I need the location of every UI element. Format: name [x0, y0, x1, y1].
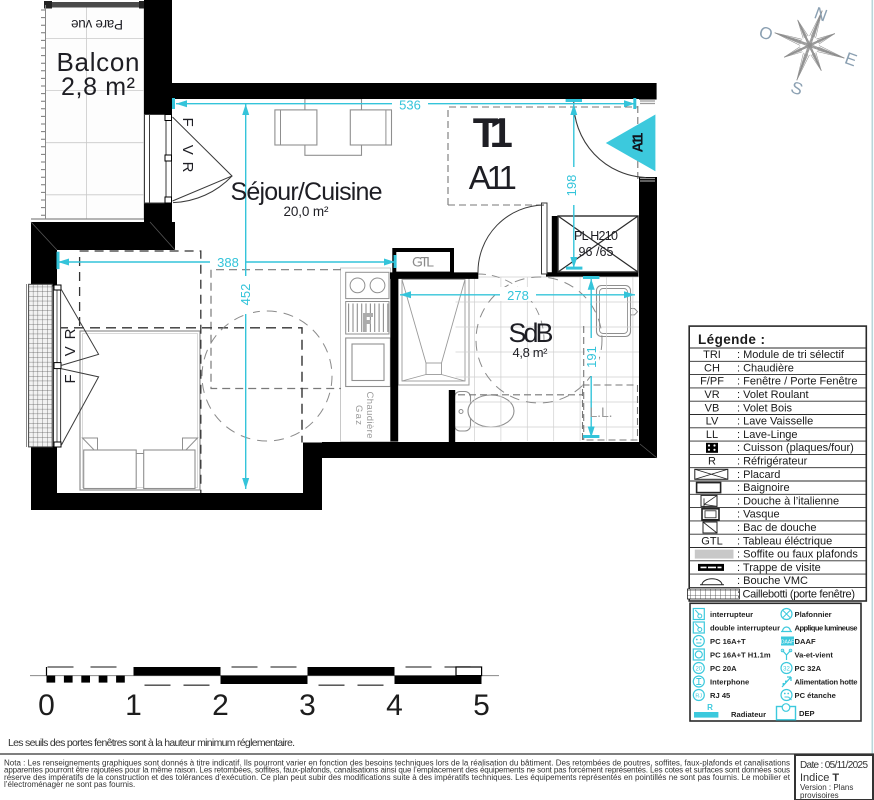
- svg-text:0: 0: [38, 689, 55, 722]
- svg-text:Légende :: Légende :: [698, 332, 765, 347]
- svg-text:4,8 m²: 4,8 m²: [513, 345, 549, 360]
- svg-text:32: 32: [783, 667, 790, 673]
- svg-text:: Module de tri sélectif: : Module de tri sélectif: [737, 349, 845, 361]
- svg-text:: Fenêtre / Porte Fenêtre: : Fenêtre / Porte Fenêtre: [737, 376, 857, 388]
- svg-text:GTL: GTL: [701, 535, 722, 547]
- svg-text:Date : 05/11/2025: Date : 05/11/2025: [800, 760, 868, 771]
- svg-text:: Lave Vaisselle: : Lave Vaisselle: [737, 416, 813, 428]
- svg-text:: Lave-Linge: : Lave-Linge: [737, 429, 798, 441]
- svg-text:F VR: F VR: [179, 118, 196, 173]
- svg-text:Interphone: Interphone: [710, 678, 749, 687]
- svg-text:: Réfrigérateur: : Réfrigérateur: [737, 456, 808, 468]
- svg-text:Applique lumineuse: Applique lumineuse: [795, 624, 858, 633]
- svg-text:LV: LV: [706, 416, 719, 428]
- svg-text:: Cuisson (plaques/four): : Cuisson (plaques/four): [737, 442, 854, 454]
- svg-text:Pare vue: Pare vue: [71, 17, 123, 32]
- svg-text:R: R: [707, 703, 713, 712]
- svg-text:A11: A11: [631, 133, 647, 153]
- svg-text:: Douche à l’italienne: : Douche à l’italienne: [737, 495, 839, 507]
- svg-text:PC 16A+T H1.1m: PC 16A+T H1.1m: [710, 651, 771, 660]
- svg-text:Gaz: Gaz: [353, 405, 364, 425]
- svg-text:278: 278: [507, 288, 529, 303]
- svg-text:20,0 m²: 20,0 m²: [284, 204, 330, 219]
- svg-text:PC étanche: PC étanche: [795, 691, 836, 700]
- svg-text:Chaudière: Chaudière: [364, 392, 375, 439]
- svg-text:T1: T1: [473, 109, 513, 156]
- svg-text:DAAF: DAAF: [795, 637, 816, 646]
- svg-text:: Volet Roulant: : Volet Roulant: [737, 389, 809, 401]
- svg-text:: Soffite ou faux plafonds: : Soffite ou faux plafonds: [737, 549, 858, 561]
- svg-text:: Bouche VMC: : Bouche VMC: [737, 575, 808, 587]
- svg-text:R: R: [708, 456, 716, 468]
- svg-text:DAAF: DAAF: [781, 639, 794, 645]
- svg-text:198: 198: [564, 175, 579, 197]
- svg-text:provisoires: provisoires: [800, 791, 839, 800]
- svg-text:: Volet Bois: : Volet Bois: [737, 402, 793, 414]
- svg-text:CH: CH: [704, 362, 720, 374]
- svg-text:PC 16A+T: PC 16A+T: [710, 637, 746, 646]
- svg-text:TRI: TRI: [703, 349, 721, 361]
- svg-text:5: 5: [473, 689, 490, 722]
- svg-text:PL H210: PL H210: [574, 229, 618, 243]
- svg-text:: Tableau éléctrique: : Tableau éléctrique: [737, 535, 832, 547]
- svg-text:F VR: F VR: [62, 328, 79, 383]
- svg-text:LL: LL: [706, 429, 718, 441]
- svg-text:: Chaudière: : Chaudière: [737, 362, 794, 374]
- svg-text:: Vasque: : Vasque: [737, 509, 780, 521]
- svg-text:452: 452: [238, 284, 253, 306]
- svg-text:VB: VB: [705, 402, 720, 414]
- svg-text:: Bac de douche: : Bac de douche: [737, 522, 817, 534]
- svg-text:Les seuils des portes fenêtres: Les seuils des portes fenêtres sont à la…: [8, 737, 295, 749]
- svg-text:GTL: GTL: [412, 254, 434, 270]
- svg-text:Alimentation hotte: Alimentation hotte: [795, 678, 858, 687]
- svg-text:1: 1: [125, 689, 142, 722]
- svg-text:: Trappe de visite: : Trappe de visite: [737, 562, 821, 574]
- svg-text:PC 32A: PC 32A: [795, 664, 822, 673]
- svg-text:Radiateur: Radiateur: [731, 710, 766, 719]
- svg-text:: Baignoire: : Baignoire: [737, 482, 790, 494]
- svg-text:536: 536: [399, 98, 421, 113]
- svg-text:: Caillebotti (porte fenêtre): : Caillebotti (porte fenêtre): [737, 589, 855, 601]
- svg-text:SdB: SdB: [509, 318, 554, 348]
- svg-text:RJ: RJ: [695, 694, 702, 700]
- svg-text:Va-et-vient: Va-et-vient: [795, 651, 834, 660]
- svg-text:96 /65: 96 /65: [579, 245, 614, 259]
- svg-text:DEP: DEP: [799, 709, 815, 718]
- svg-text:RJ 45: RJ 45: [710, 691, 731, 700]
- svg-text:2,8 m²: 2,8 m²: [61, 73, 135, 101]
- svg-text:3: 3: [299, 689, 316, 722]
- svg-text:F/PF: F/PF: [700, 376, 724, 388]
- svg-text:4: 4: [386, 689, 403, 722]
- svg-text:interrupteur: interrupteur: [710, 610, 753, 619]
- svg-text:A11: A11: [469, 159, 517, 196]
- svg-text:L.L.: L.L.: [590, 404, 613, 420]
- svg-text:VR: VR: [704, 389, 719, 401]
- svg-text:191: 191: [584, 346, 599, 368]
- svg-text:Plafonnier: Plafonnier: [795, 610, 832, 619]
- svg-text:: Placard: : Placard: [737, 469, 780, 481]
- svg-text:l’électroménager ne sont pas f: l’électroménager ne sont pas fournis.: [4, 780, 135, 789]
- svg-text:double interrupteur: double interrupteur: [710, 624, 780, 633]
- svg-text:2: 2: [212, 689, 229, 722]
- svg-text:388: 388: [217, 255, 239, 270]
- svg-text:Séjour/Cuisine: Séjour/Cuisine: [231, 178, 383, 206]
- svg-text:PC 20A: PC 20A: [710, 664, 737, 673]
- svg-text:20: 20: [695, 667, 702, 673]
